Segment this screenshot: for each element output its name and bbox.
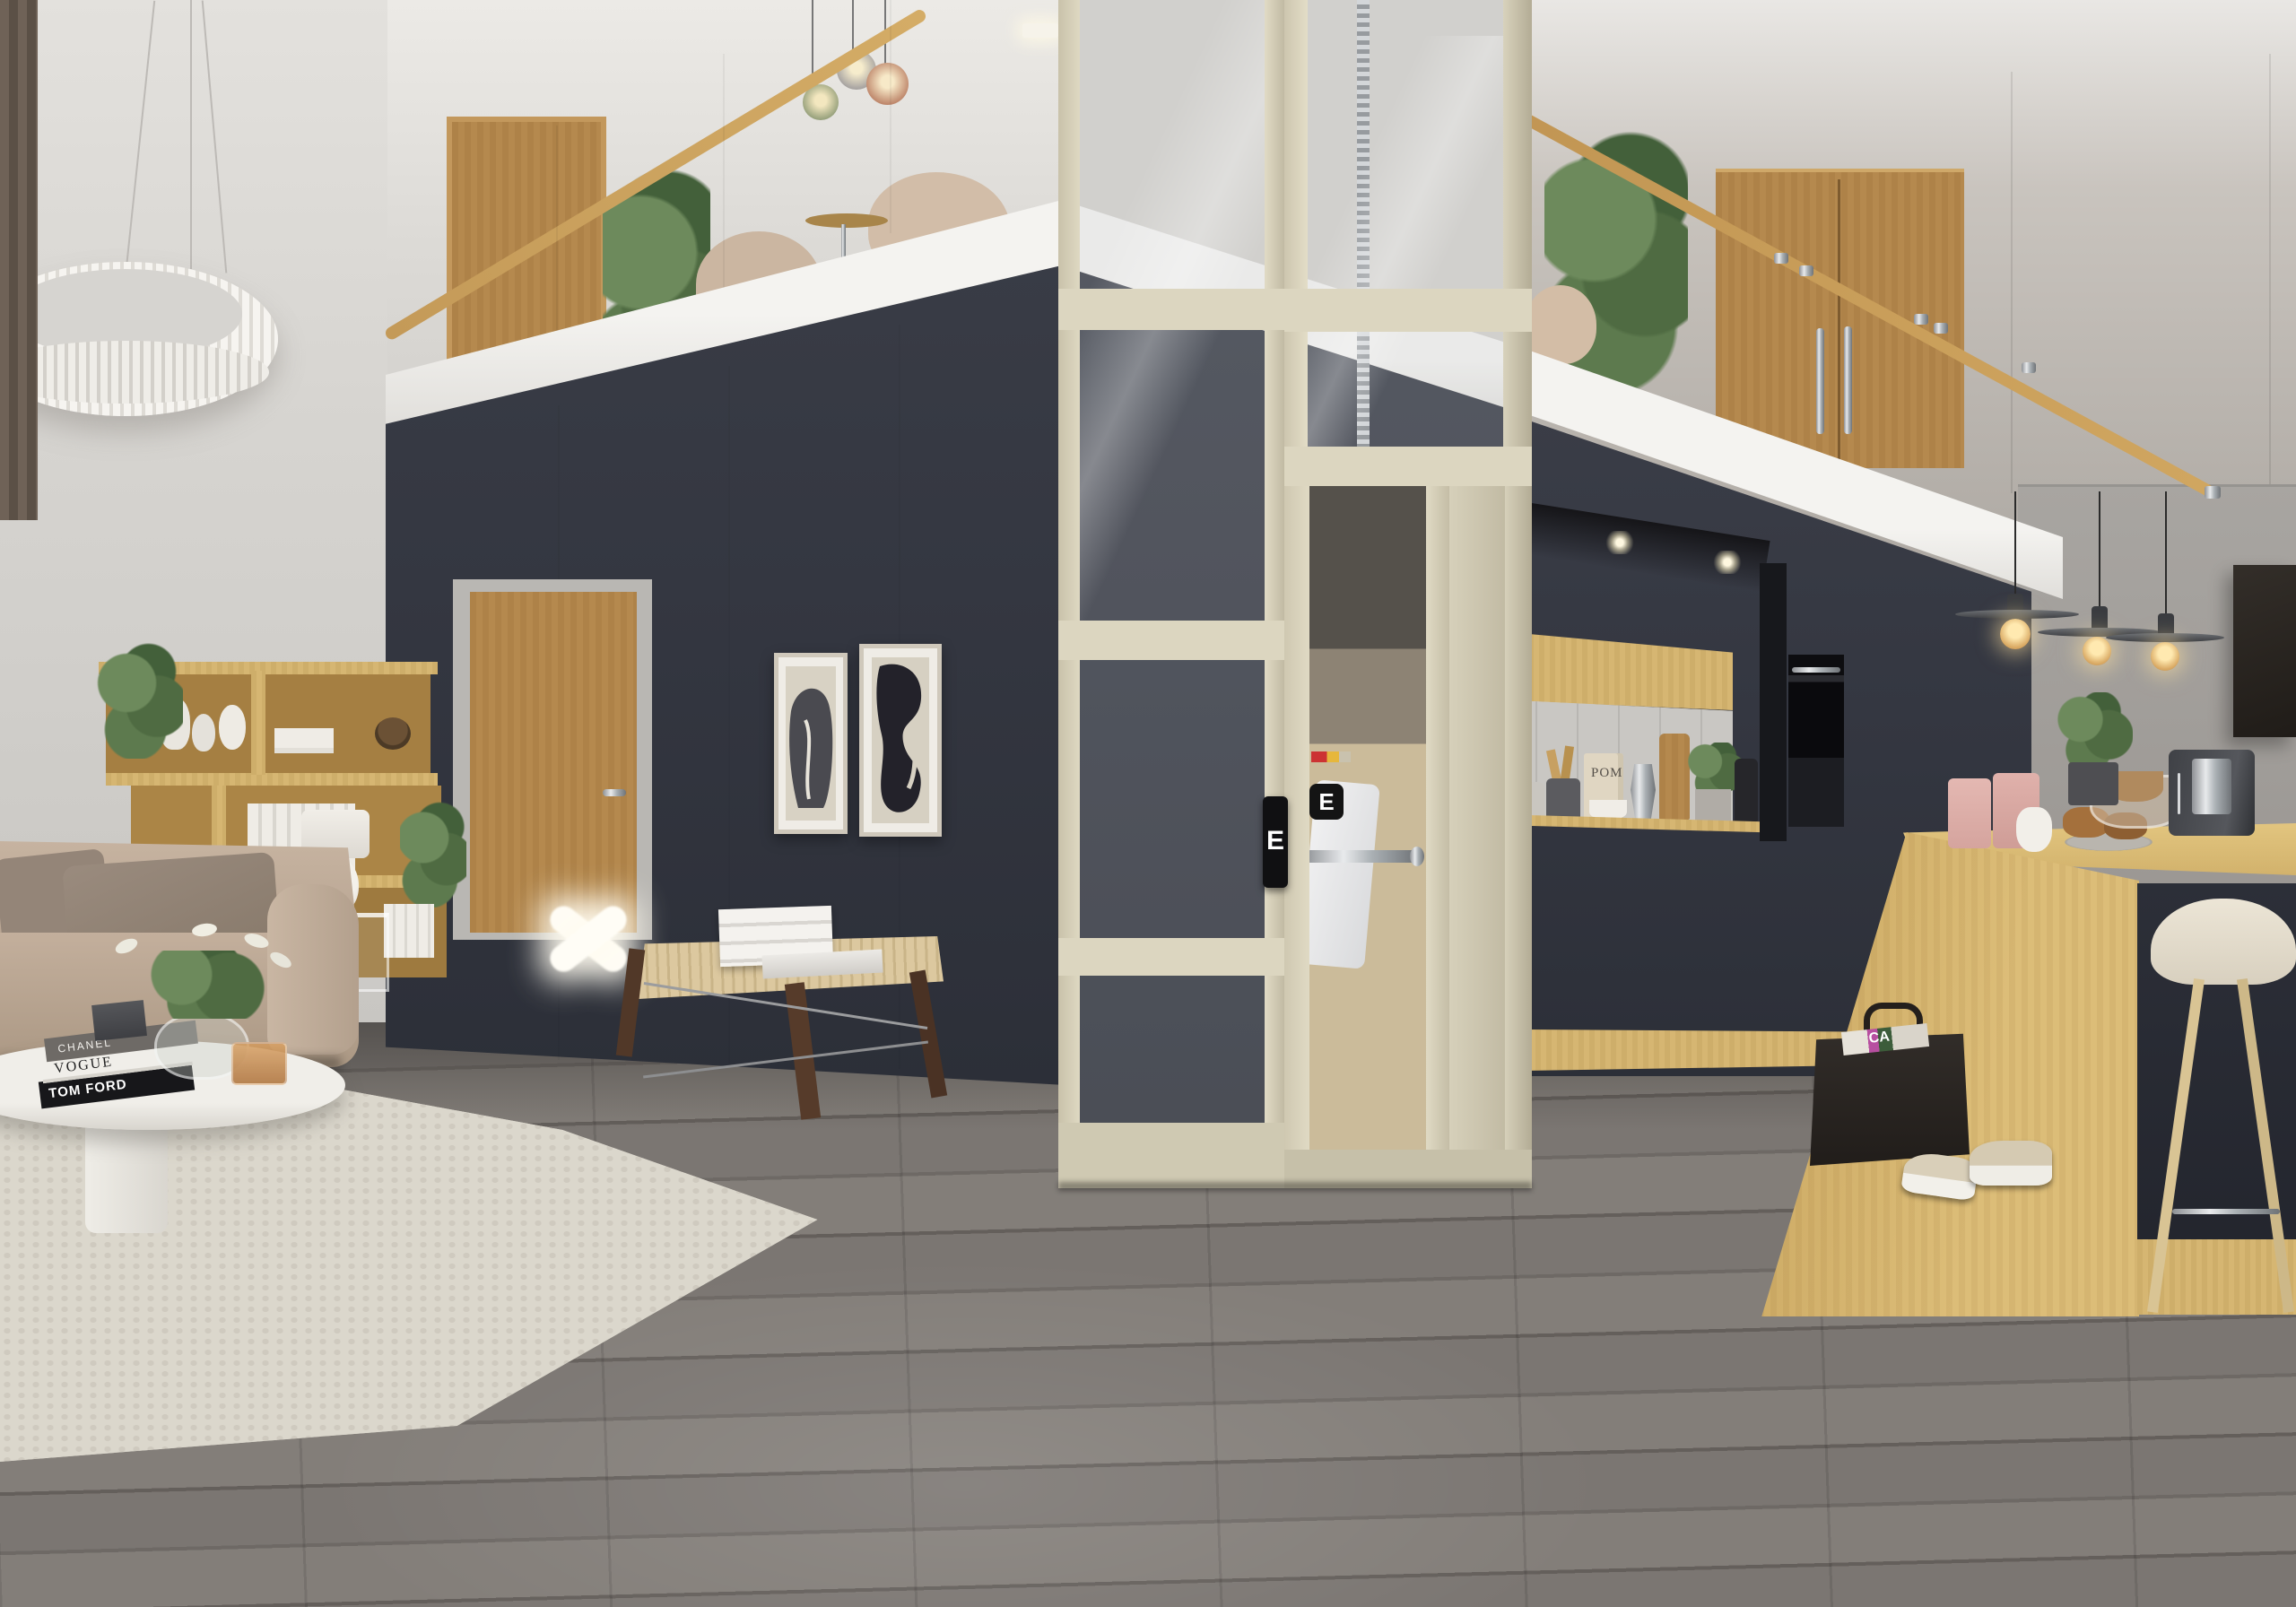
coffee-table-top (0, 1040, 345, 1130)
amber-candle-holder (231, 1042, 287, 1085)
edison-bulb (2151, 642, 2179, 671)
espresso-machine (2169, 750, 2255, 836)
pendant-cord (2014, 491, 2016, 610)
pendant-cord (852, 0, 854, 56)
book-chanel: CHANEL (44, 1021, 198, 1063)
ring-chandelier (0, 262, 278, 416)
sofa-armrest (267, 884, 359, 1055)
niche-frame (1760, 563, 1787, 841)
island-herb-plant (2052, 692, 2133, 769)
abstract-art-graphic (778, 657, 843, 830)
tulip-flower (191, 922, 218, 938)
glass-home-elevator: E E (1058, 0, 1532, 1188)
edison-bulb (2083, 637, 2111, 665)
right-mezzanine-wall (1525, 0, 2296, 628)
elevator-logo-tile: E (1309, 784, 1344, 820)
bench-brace (643, 1041, 928, 1079)
armchair (868, 172, 1010, 280)
kitchen-plinth (1525, 1029, 1883, 1071)
cutting-board (1659, 734, 1690, 820)
brown-curtain (0, 0, 38, 520)
edison-bulb (2000, 619, 2031, 649)
fascia-through-glass (1058, 179, 1532, 439)
shelf-bay (136, 888, 447, 977)
cube-panel-seam (728, 366, 730, 1065)
small-books-inside-cab (1311, 751, 1351, 762)
glass-seam (890, 0, 891, 233)
loft-interior-scene: POM CA (0, 0, 2296, 1607)
cab-door-handle (1304, 850, 1417, 863)
pendant-cord (812, 0, 813, 90)
oak-door (470, 592, 637, 933)
double-oak-doors (1716, 169, 1964, 468)
shaft-rail (1058, 938, 1286, 976)
shaft-base (1058, 1123, 1286, 1188)
lamp-arm (544, 900, 631, 977)
white-vase (192, 714, 215, 751)
tulip-flower (243, 931, 271, 951)
chrome-screw-drive (1357, 0, 1370, 753)
glass-vase (154, 1012, 249, 1080)
oak-handrail-left (383, 7, 927, 342)
pastry (2104, 812, 2147, 839)
white-jug (2016, 807, 2052, 852)
cab-white-panel (1300, 779, 1380, 969)
stool-leg (2147, 978, 2205, 1313)
shaft-backdrop-wall (1058, 0, 1532, 377)
sneaker (1970, 1141, 2052, 1186)
trailing-plant (97, 642, 183, 759)
shelf-bay (106, 671, 430, 778)
mezzanine-tree (1544, 126, 1688, 395)
navy-through-glass (1058, 256, 1532, 1179)
white-bowl (1589, 800, 1627, 820)
built-in-oven (1788, 655, 1844, 827)
cube-panel-seam (558, 405, 560, 1060)
handrail-bracket (2022, 362, 2036, 373)
x-floor-lamp (535, 886, 642, 990)
dark-feature-cube (386, 179, 1065, 1085)
pendant-socket (2158, 613, 2174, 638)
right-wall (2018, 484, 2296, 1076)
ceiling-line (2018, 484, 2296, 487)
white-book-stack (718, 906, 833, 967)
shelf-board (124, 875, 447, 888)
sofa-pillow (62, 852, 282, 992)
island-top (1903, 823, 2296, 875)
wood-countertop (1492, 814, 1761, 832)
front-crossbeam (1284, 289, 1532, 332)
pendant-cord (2165, 491, 2167, 638)
island-recess (2137, 883, 2296, 1314)
left-mezzanine-wall (387, 0, 1065, 448)
mezzanine-door (447, 117, 606, 423)
sneaker (1900, 1151, 1979, 1202)
bench-leg (785, 982, 821, 1120)
door-stile (1284, 486, 1309, 1177)
cookbook: POM (1584, 753, 1623, 821)
chandelier-wire (190, 0, 192, 269)
glass-reflection (1080, 0, 1265, 628)
pendant-cord (884, 0, 886, 68)
white-vase (219, 705, 246, 750)
lamp-base (312, 856, 359, 914)
globe-pendant-green (803, 84, 839, 120)
door-center-seam (1838, 179, 1840, 462)
door-header (1284, 447, 1532, 486)
sofa-pillow (0, 848, 116, 981)
oak-handrail-right (1441, 69, 2214, 498)
sofa-seat (0, 933, 359, 1067)
magazines: CA (1841, 1023, 1929, 1055)
black-vase (1735, 759, 1758, 821)
stool-footrest (2172, 1209, 2280, 1214)
book-row (248, 803, 355, 873)
front-stile (1503, 0, 1532, 1188)
book-stack-flat (274, 728, 334, 748)
cookbook-title: POM (1591, 766, 1623, 781)
tulip-flower (267, 949, 293, 970)
machine-front-panel (2192, 759, 2231, 814)
left-wall (0, 0, 387, 1076)
side-table-top (805, 213, 888, 228)
utensil-crock (1546, 778, 1580, 821)
pink-cup-stack (1993, 773, 2039, 848)
shelf-board (106, 773, 438, 786)
framed-abstract-art (774, 653, 848, 834)
pendant-socket (2092, 606, 2108, 631)
handrail-bracket (1774, 253, 1788, 264)
chandelier-inner-band (0, 341, 269, 404)
counter-plant (1683, 743, 1747, 796)
globe-pendant-smoke (837, 50, 876, 90)
sofa-shadow (0, 1056, 341, 1071)
glass-seam (723, 54, 725, 305)
armchair (696, 231, 822, 337)
chandelier-wire (202, 0, 228, 273)
navy-kitchen-block (1525, 413, 2031, 1076)
lamp-arm (544, 900, 631, 977)
shelf-divider (251, 671, 265, 775)
stool-leg (2237, 978, 2294, 1313)
cream-rug (0, 1013, 879, 1462)
glass-bowl (2090, 775, 2183, 829)
decor-box (91, 1000, 147, 1041)
call-panel: E (1263, 796, 1288, 888)
elevator-logo-letter: E (1309, 784, 1344, 820)
sofa-back (0, 841, 359, 949)
door-handle (1844, 326, 1852, 434)
pendant-cord (2099, 491, 2100, 631)
book-spine-title: CHANEL (44, 1021, 198, 1063)
magazine-letters: CA (1868, 1029, 1891, 1047)
mezzanine-fascia-left (386, 0, 1065, 448)
handrail-bracket (1934, 323, 1948, 334)
door-handle (1816, 328, 1824, 434)
shelf-divider (212, 786, 226, 877)
side-table-stem (841, 224, 846, 296)
elevator-floor-shadow (1058, 1182, 1532, 1191)
oven-handle (1792, 667, 1840, 673)
tulip-stems (135, 951, 269, 1019)
framed-abstract-art (859, 644, 942, 837)
island-front (1758, 832, 2139, 1316)
cube-panel-seam (899, 325, 900, 1069)
shaft-rail (1058, 621, 1286, 660)
mezzanine-plant (603, 161, 710, 421)
wood-bowl (375, 717, 411, 750)
beige-pouf (1525, 285, 1596, 364)
book-vogue: VOGUE (40, 1042, 193, 1083)
recessed-ceiling-light (1022, 23, 1058, 38)
island-low-shelf (2137, 1239, 2296, 1315)
bench-leg (909, 970, 947, 1099)
chandelier-wire (125, 1, 155, 278)
bench-brace (644, 982, 928, 1029)
book-spine-title: TOM FORD (39, 1064, 195, 1109)
handrail-bracket (2205, 486, 2221, 499)
machine-tube (2178, 773, 2180, 814)
handrail-bracket (1799, 265, 1813, 276)
wood-bowls (2106, 771, 2163, 802)
moka-pot (1631, 764, 1656, 821)
pastry (2063, 807, 2109, 838)
soffit-spotlight (1711, 551, 1744, 574)
tulip-flower (113, 935, 139, 956)
shaft-rail (1058, 289, 1286, 330)
acrylic-side-table (285, 913, 389, 992)
white-vase (160, 698, 190, 750)
wooden-spoon (1560, 746, 1574, 786)
front-stile (1284, 0, 1308, 1188)
trailing-plant (400, 800, 466, 908)
book-row (384, 904, 434, 958)
wall-panel-seam (2011, 72, 2013, 493)
cab-interior-through-door (1308, 486, 1428, 1164)
glass-seam (556, 126, 558, 368)
mezzanine-fascia-right (1525, 341, 2063, 610)
globe-pendant-amber (866, 63, 909, 105)
pink-cup-stack (1948, 778, 1991, 848)
shaft-front-glass (1306, 0, 1507, 448)
herb-pot (2068, 762, 2118, 805)
handrail-bracket (1914, 314, 1928, 325)
shelf-bay (131, 786, 441, 882)
call-panel-letter: E (1263, 796, 1288, 886)
disc-pendant-shade (2038, 628, 2161, 637)
woven-bench-seat (639, 936, 944, 999)
shelf-board (99, 662, 438, 674)
door-handle (603, 789, 626, 796)
book-tom-ford: TOM FORD (39, 1064, 195, 1109)
book-spine-title: VOGUE (40, 1042, 193, 1081)
disc-pendant-shade (1955, 610, 2079, 619)
lamp-shade (301, 810, 370, 858)
chandelier-inner-hole (9, 269, 242, 359)
plant-pot (1695, 789, 1731, 823)
door-stile (1426, 486, 1449, 1177)
bar-stool-seat (2151, 899, 2296, 985)
bench-leg (616, 948, 645, 1056)
shaft-side-glass (1080, 0, 1265, 1123)
door-side-panel (1449, 486, 1505, 1177)
shaft-stile (1058, 0, 1080, 1188)
shaft-stile (1265, 0, 1286, 1188)
abstract-art-graphic (864, 648, 937, 832)
disc-pendant-shade (2106, 633, 2224, 642)
door-recess (453, 579, 652, 940)
door-bottom-rail (1284, 1150, 1532, 1188)
dark-wall-artwork (2233, 565, 2296, 737)
leather-magazine-basket (1810, 1022, 1970, 1166)
handle-end (1410, 847, 1424, 866)
white-folder (761, 950, 883, 979)
soffit-spotlight (1604, 531, 1636, 554)
glass-reflection (1306, 36, 1507, 448)
basket-handle (1864, 1003, 1923, 1036)
coffee-table-pedestal (85, 1116, 168, 1233)
pendant-socket (2007, 594, 2023, 617)
wall-panel-seam (2269, 54, 2271, 502)
pastry-plate (2050, 830, 2167, 854)
wooden-spoon (1546, 749, 1562, 786)
